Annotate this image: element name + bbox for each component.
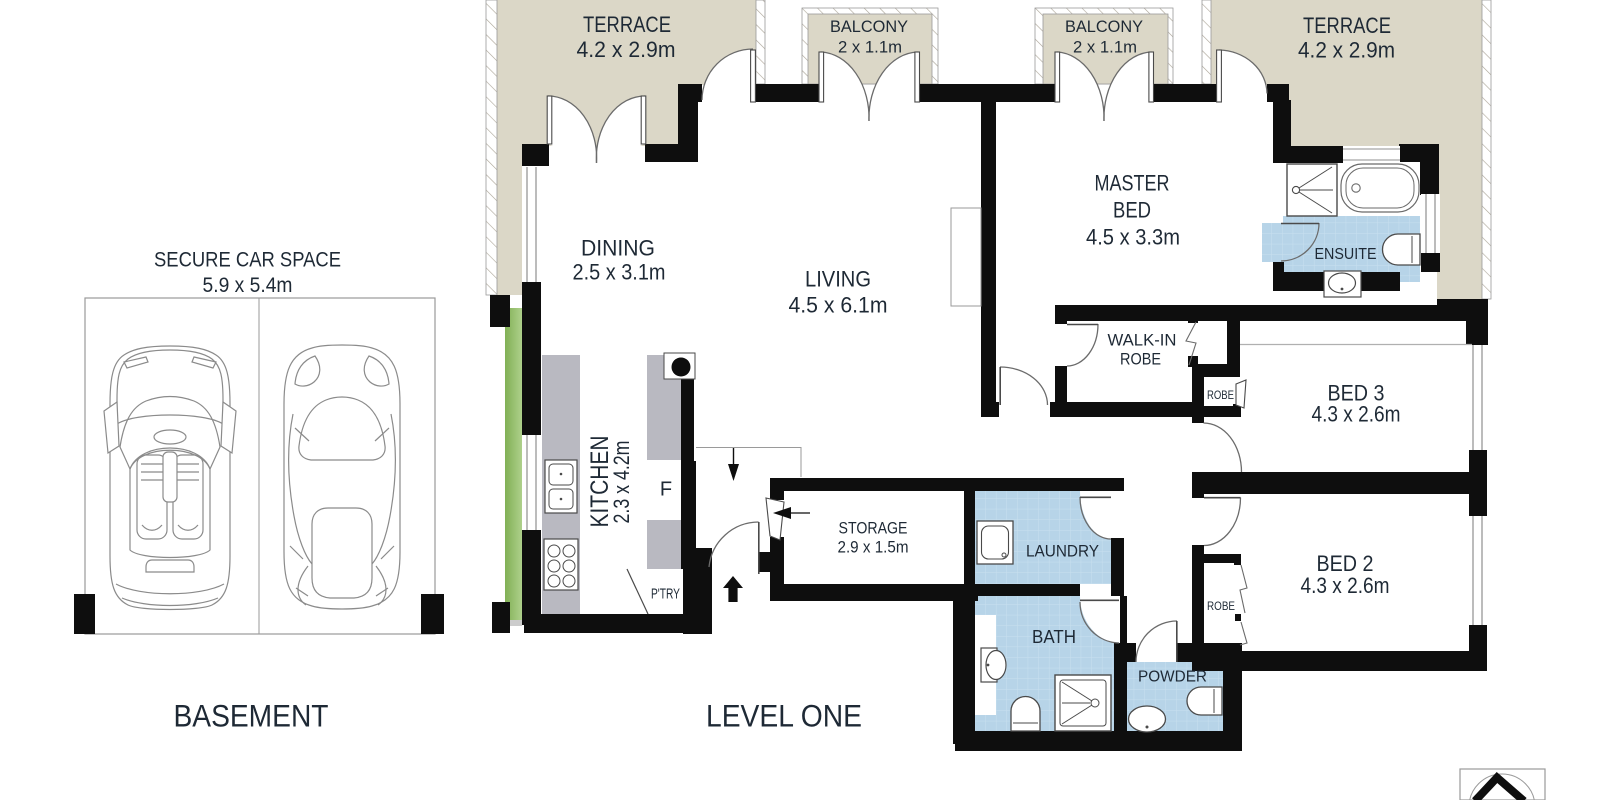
svg-text:ROBE: ROBE — [1207, 390, 1234, 402]
svg-text:LIVING: LIVING — [805, 267, 871, 292]
svg-text:2 x 1.1m: 2 x 1.1m — [838, 39, 902, 57]
svg-text:F: F — [660, 479, 672, 501]
svg-text:LAUNDRY: LAUNDRY — [1026, 542, 1099, 561]
svg-text:TERRACE: TERRACE — [1303, 13, 1391, 38]
svg-text:LEVEL ONE: LEVEL ONE — [706, 698, 862, 734]
svg-text:P'TRY: P'TRY — [651, 587, 680, 603]
svg-text:DINING: DINING — [581, 236, 655, 261]
svg-text:STORAGE: STORAGE — [839, 519, 908, 538]
svg-text:WALK-IN: WALK-IN — [1108, 331, 1177, 350]
svg-text:4.2 x 2.9m: 4.2 x 2.9m — [577, 37, 676, 62]
svg-text:2.9 x 1.5m: 2.9 x 1.5m — [838, 539, 909, 557]
svg-text:SECURE CAR SPACE: SECURE CAR SPACE — [154, 249, 341, 272]
svg-text:4.2 x 2.9m: 4.2 x 2.9m — [1298, 38, 1395, 63]
svg-text:BASEMENT: BASEMENT — [174, 698, 329, 734]
svg-text:BALCONY: BALCONY — [1065, 18, 1143, 36]
svg-text:2 x 1.1m: 2 x 1.1m — [1073, 39, 1137, 57]
svg-text:4.5 x 3.3m: 4.5 x 3.3m — [1086, 225, 1180, 250]
svg-text:2.5 x 3.1m: 2.5 x 3.1m — [573, 260, 666, 285]
svg-text:BALCONY: BALCONY — [830, 18, 908, 36]
svg-text:TERRACE: TERRACE — [583, 12, 671, 37]
svg-text:MASTER: MASTER — [1095, 171, 1170, 196]
svg-text:ROBE: ROBE — [1207, 601, 1235, 613]
svg-text:2.3 x 4.2m: 2.3 x 4.2m — [609, 441, 634, 524]
svg-text:ENSUITE: ENSUITE — [1315, 246, 1377, 263]
svg-text:BED: BED — [1113, 198, 1151, 223]
svg-text:ROBE: ROBE — [1120, 350, 1161, 369]
svg-text:4.5 x 6.1m: 4.5 x 6.1m — [789, 293, 888, 318]
svg-text:4.3 x 2.6m: 4.3 x 2.6m — [1312, 402, 1401, 427]
svg-text:5.9 x 5.4m: 5.9 x 5.4m — [203, 274, 293, 297]
svg-text:POWDER: POWDER — [1138, 669, 1207, 686]
svg-text:BATH: BATH — [1032, 627, 1076, 647]
svg-text:4.3 x 2.6m: 4.3 x 2.6m — [1301, 573, 1390, 598]
